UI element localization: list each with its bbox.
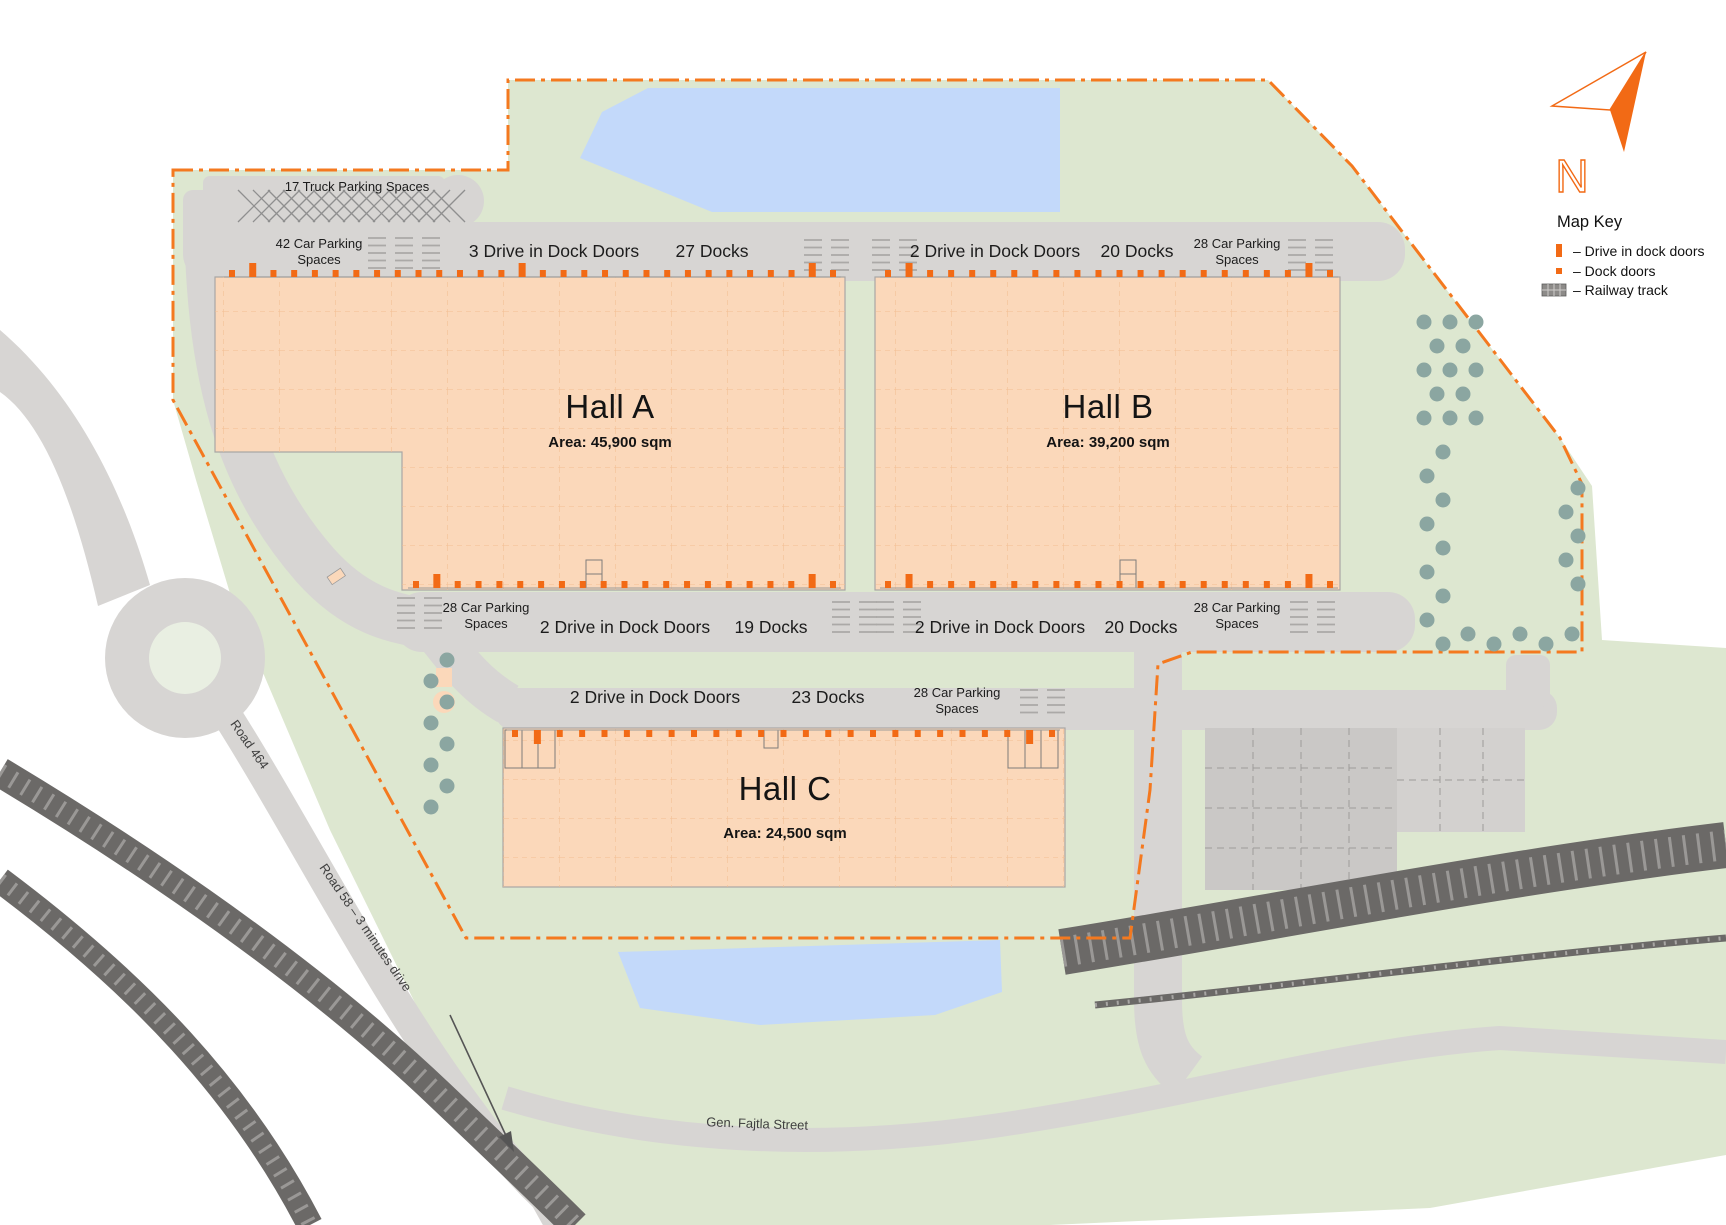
gatehouse [436, 668, 452, 687]
hall-b-bottom-docks-label: 20 Docks [1105, 617, 1178, 637]
parking-road-stub [1506, 655, 1550, 707]
hall-b-top-parking-line1: 28 Car Parking [1194, 236, 1281, 251]
roundabout-island [149, 622, 221, 694]
hall-a-top-docks-label: 27 Docks [676, 241, 749, 261]
hall-a-bottom-parking-line2: Spaces [464, 616, 508, 631]
car-parking-42-line2: Spaces [297, 252, 341, 267]
truck-parking-label: 17 Truck Parking Spaces [285, 179, 430, 194]
north-letter: N [1555, 150, 1588, 202]
hall-c-top-drive-in-label: 2 Drive in Dock Doors [570, 687, 740, 707]
hall-b-title: Hall B [1062, 388, 1153, 425]
legend-drive-in-dock-icon [1556, 244, 1562, 257]
hall-c-top-parking-line1: 28 Car Parking [914, 685, 1001, 700]
site-plan-map: 17 Truck Parking Spaces 42 Car Parking S… [0, 0, 1726, 1225]
hall-c-top-parking-line2: Spaces [935, 701, 979, 716]
hall-a-bottom-docks-label: 19 Docks [735, 617, 808, 637]
hall-a-bottom-parking-line1: 28 Car Parking [443, 600, 530, 615]
site-plan-canvas: 17 Truck Parking Spaces 42 Car Parking S… [0, 0, 1726, 1225]
hall-c-top-docks-label: 23 Docks [792, 687, 865, 707]
hall-c-title: Hall C [739, 770, 832, 807]
legend-dock-label: – Dock doors [1573, 263, 1655, 279]
legend-railway-label: – Railway track [1573, 282, 1669, 298]
hall-b-bottom-drive-in-label: 2 Drive in Dock Doors [915, 617, 1085, 637]
hall-b-bottom-parking-line2: Spaces [1215, 616, 1259, 631]
hall-b-top-drive-in-label: 2 Drive in Dock Doors [910, 241, 1080, 261]
hall-b-bottom-parking-line1: 28 Car Parking [1194, 600, 1281, 615]
hall-a-area: Area: 45,900 sqm [548, 434, 671, 451]
parking-top-road [1165, 690, 1557, 730]
car-parking-42-line1: 42 Car Parking [276, 236, 363, 251]
hall-a-bottom-drive-in-label: 2 Drive in Dock Doors [540, 617, 710, 637]
hall-b-top-parking-line2: Spaces [1215, 252, 1259, 267]
hall-b-top-docks-label: 20 Docks [1101, 241, 1174, 261]
north-arrow-icon [1552, 52, 1646, 152]
hall-c-area: Area: 24,500 sqm [723, 825, 846, 842]
legend-dock-door-icon [1556, 268, 1562, 274]
legend-icons [1542, 244, 1566, 296]
map-key-title: Map Key [1557, 213, 1623, 231]
hall-b-area: Area: 39,200 sqm [1046, 434, 1169, 451]
legend-railway-icon [1542, 284, 1566, 296]
hall-a-top-drive-in-label: 3 Drive in Dock Doors [469, 241, 639, 261]
west-access-road [0, 330, 150, 606]
legend-drive-in-label: – Drive in dock doors [1573, 243, 1705, 259]
hall-a-title: Hall A [565, 388, 654, 425]
